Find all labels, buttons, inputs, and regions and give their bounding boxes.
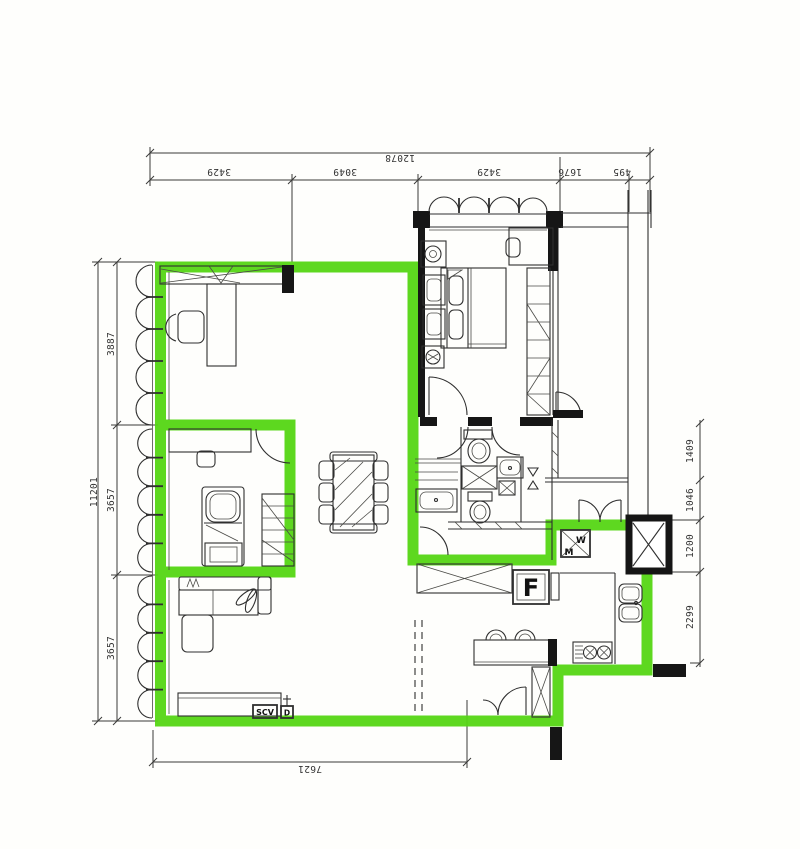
dim-right-seg-4: 2299	[685, 605, 696, 629]
sofa-chaise	[182, 615, 213, 652]
dining-chair	[373, 461, 388, 480]
floor-plan-page: 12078 3429 3049 3429 1676 495 11201 3887…	[0, 0, 800, 849]
bathtub	[416, 489, 457, 512]
dim-left-seg-3: 3657	[106, 636, 117, 660]
dining-chair	[373, 505, 388, 524]
sofa-mark	[187, 579, 199, 587]
drain-triangle	[528, 468, 538, 476]
bedroom-2	[169, 429, 294, 570]
nightstand	[423, 275, 445, 305]
scv-label: SCV	[256, 708, 275, 717]
bar-stool	[486, 630, 506, 640]
door-swing	[498, 687, 526, 715]
bar-stool	[515, 630, 535, 640]
door-swing	[429, 377, 467, 415]
lamp	[425, 246, 441, 262]
dim-top-seg-1: 3429	[207, 166, 231, 177]
wall-stub	[550, 727, 562, 760]
dim-bottom-total: 7621	[298, 763, 322, 774]
sofa-arm	[258, 577, 271, 614]
master-bedroom	[413, 197, 563, 417]
door-swing	[420, 527, 448, 555]
dim-left-total: 11201	[89, 477, 100, 507]
door-swing	[437, 427, 468, 458]
outlet-label: D	[284, 709, 290, 718]
sofa-back	[179, 577, 271, 590]
dining-area	[319, 452, 388, 533]
chair	[506, 238, 520, 257]
island-counter	[474, 640, 550, 665]
living-room: SCV D	[169, 577, 562, 760]
dining-chair	[373, 483, 388, 502]
room-divider-highlight	[160, 425, 290, 572]
dim-top-seg-4: 1676	[558, 166, 582, 177]
dining-chair	[319, 505, 334, 524]
bathroom	[415, 417, 558, 560]
window-arcs-top	[429, 197, 547, 212]
pillow	[449, 276, 463, 305]
drain-triangle	[528, 481, 538, 489]
dim-left-seg-1: 3887	[106, 332, 117, 356]
dining-chair	[319, 461, 334, 480]
dimension-chain-top: 12078 3429 3049 3429 1676 495	[146, 147, 654, 262]
dim-left-seg-2: 3657	[106, 488, 117, 512]
dim-right-seg-3: 1200	[685, 534, 696, 558]
wall-stub	[553, 410, 583, 418]
washer-label-w: W	[576, 536, 586, 546]
dim-top-seg-2: 3049	[333, 166, 357, 177]
double-bed	[441, 268, 506, 348]
wall-stub	[653, 664, 686, 677]
desk-2	[169, 429, 251, 452]
column	[282, 265, 294, 293]
unit-boundary-highlight	[160, 267, 647, 721]
floor-plan-drawing: 12078 3429 3049 3429 1676 495 11201 3887…	[0, 0, 800, 849]
unit-boundary-outline	[161, 267, 648, 721]
bed-pillow	[206, 491, 240, 522]
toilet-bowl	[470, 501, 490, 523]
entry-door-swing	[600, 500, 621, 522]
desk	[207, 284, 236, 366]
entry-door-swing	[579, 500, 600, 522]
dresser	[509, 228, 553, 265]
door-swing	[492, 427, 520, 455]
dim-right-seg-1: 1409	[685, 439, 696, 463]
table-end	[330, 452, 377, 461]
study-room	[160, 265, 294, 420]
chair-2	[197, 451, 215, 467]
toilet-tank	[468, 492, 492, 501]
nightstand	[423, 309, 445, 339]
office-chair	[178, 311, 204, 343]
dim-top-seg-5: 495	[613, 166, 631, 177]
dining-chair	[319, 483, 334, 502]
wardrobe-master	[527, 268, 550, 415]
dim-top-total: 12078	[385, 152, 415, 163]
dimension-chain-bottom: 7621	[149, 700, 471, 774]
dim-right-seg-2: 1046	[685, 488, 696, 512]
dim-top-seg-3: 3429	[477, 166, 501, 177]
washer-label-m: M	[565, 548, 574, 558]
fridge-label: F	[523, 574, 539, 602]
stove	[573, 642, 612, 663]
entry-corridor	[545, 190, 669, 571]
bed-foot-box	[205, 543, 242, 566]
pillow	[449, 310, 463, 339]
